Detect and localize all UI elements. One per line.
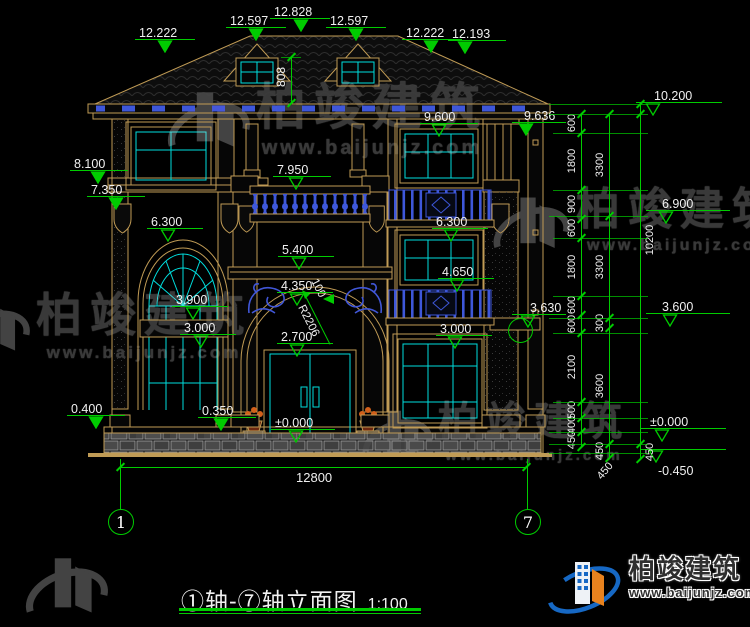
cad-elevation-drawing: 808 R2206 100 12800 12.22212.59712.82812… [0, 0, 750, 627]
level-triangle-icon [193, 335, 209, 348]
chain-line [581, 114, 582, 447]
chain-line [640, 104, 641, 459]
title-underline-thick [179, 608, 421, 611]
level-value: 12.597 [230, 14, 268, 28]
extension-line [549, 104, 648, 105]
level-line [420, 123, 478, 124]
title-underline-thin [179, 613, 421, 614]
level-triangle-icon [88, 416, 104, 429]
level-triangle-icon [449, 279, 465, 292]
extension-line [549, 432, 648, 433]
chain-value: 3300 [594, 255, 606, 279]
level-triangle-icon [348, 28, 364, 41]
brand-name: 柏竣建筑 [629, 554, 750, 585]
extension-line [553, 402, 648, 403]
level-value: 2.700 [281, 330, 312, 344]
axis-bubble-7: 7 [515, 509, 541, 535]
level-triangle-icon [213, 418, 229, 431]
level-value: 7.950 [277, 163, 308, 177]
extension-line [549, 114, 648, 115]
level-triangle-icon [431, 124, 447, 137]
level-value: 9.636 [524, 109, 555, 123]
level-value: 3.630 [530, 301, 561, 315]
level-value: 3.900 [176, 293, 207, 307]
chain-value: 600 [566, 219, 578, 237]
extension-line [553, 296, 648, 297]
level-value: ±0.000 [275, 416, 313, 430]
level-value: 6.300 [436, 215, 467, 229]
gap-arrow-icon [322, 293, 336, 305]
level-value: 6.300 [151, 215, 182, 229]
brand-url: www.baijunjz.com [629, 585, 750, 600]
level-triangle-icon [288, 430, 304, 443]
extension-line [549, 444, 648, 445]
level-value: 12.193 [452, 27, 490, 41]
level-value: 12.828 [274, 5, 312, 19]
level-triangle-icon [157, 40, 173, 53]
level-triangle-icon [457, 41, 473, 54]
level-triangle-icon [658, 211, 674, 224]
dim-overall: 12800 [296, 470, 332, 485]
chain-value-diagonal: 450 [595, 460, 616, 482]
level-circle-icon [508, 318, 533, 343]
axis-ext-left [120, 459, 121, 509]
level-triangle-icon [185, 307, 201, 320]
extension-line [553, 133, 648, 134]
level-line [432, 228, 488, 229]
chain-value: 600 [566, 114, 578, 132]
dim-line-808 [291, 57, 292, 103]
level-triangle-icon [288, 177, 304, 190]
chain-value: 1800 [566, 255, 578, 279]
level-triangle-icon [289, 293, 305, 306]
level-line [277, 292, 333, 293]
axis-label: 1 [116, 513, 126, 532]
level-value: 9.600 [424, 110, 455, 124]
chain-value: 450 [566, 431, 578, 449]
level-line [646, 313, 730, 314]
chain-value: 3300 [594, 153, 606, 177]
chain-value: 2100 [566, 355, 578, 379]
extension-line [549, 216, 648, 217]
level-triangle-icon [654, 429, 670, 442]
level-value: 0.400 [71, 402, 102, 416]
level-value: 3.000 [440, 322, 471, 336]
level-line [640, 428, 726, 429]
level-triangle-icon [293, 19, 309, 32]
dimension-layer: 808 R2206 100 12800 12.22212.59712.82812… [0, 0, 750, 627]
level-value: 5.400 [282, 243, 313, 257]
level-triangle-icon [160, 229, 176, 242]
chain-value: 900 [566, 195, 578, 213]
chain-value: 300 [594, 314, 606, 332]
chain-value: 10200 [644, 225, 656, 256]
level-triangle-icon [443, 229, 459, 242]
chain-value: 600 [566, 296, 578, 314]
chain-line [609, 114, 610, 458]
level-value: 4.650 [442, 265, 473, 279]
level-value: 3.600 [662, 300, 693, 314]
level-value: 7.350 [91, 183, 122, 197]
dim-tick [287, 98, 296, 107]
extension-line [553, 238, 648, 239]
level-value: 3.000 [184, 321, 215, 335]
axis-label: 7 [523, 513, 533, 532]
brand-logo-icon [543, 554, 625, 618]
brand-logo: 柏竣建筑 www.baijunjz.com [543, 554, 750, 618]
level-triangle-icon [423, 40, 439, 53]
extension-line [553, 190, 648, 191]
chain-value: 450 [644, 443, 656, 461]
level-line [277, 343, 333, 344]
level-triangle-icon [518, 123, 534, 136]
level-line [436, 335, 492, 336]
axis-ext-right [527, 459, 528, 509]
level-value: 4.350 [281, 279, 312, 293]
level-triangle-icon [291, 257, 307, 270]
extension-line [549, 453, 648, 454]
dim-808: 808 [274, 62, 288, 92]
level-value: 6.900 [662, 197, 693, 211]
axis-bubble-1: 1 [108, 509, 134, 535]
level-value: ±0.000 [650, 415, 688, 429]
overall-dim-line [120, 467, 527, 468]
level-triangle-icon [447, 336, 463, 349]
extension-line [553, 418, 648, 419]
level-value: 12.222 [139, 26, 177, 40]
level-value: 12.222 [406, 26, 444, 40]
extension-line [549, 318, 648, 319]
chain-value: 1800 [566, 149, 578, 173]
level-triangle-icon [108, 197, 124, 210]
extension-line [553, 333, 648, 334]
level-value: 10.200 [654, 89, 692, 103]
chain-value: 3600 [594, 374, 606, 398]
level-triangle-icon [289, 344, 305, 357]
level-triangle-icon [662, 314, 678, 327]
level-value: 8.100 [74, 157, 105, 171]
level-value: 0.350 [202, 404, 233, 418]
level-line [438, 278, 494, 279]
level-value: -0.450 [658, 464, 693, 478]
level-triangle-icon [248, 28, 264, 41]
level-value: 12.597 [330, 14, 368, 28]
